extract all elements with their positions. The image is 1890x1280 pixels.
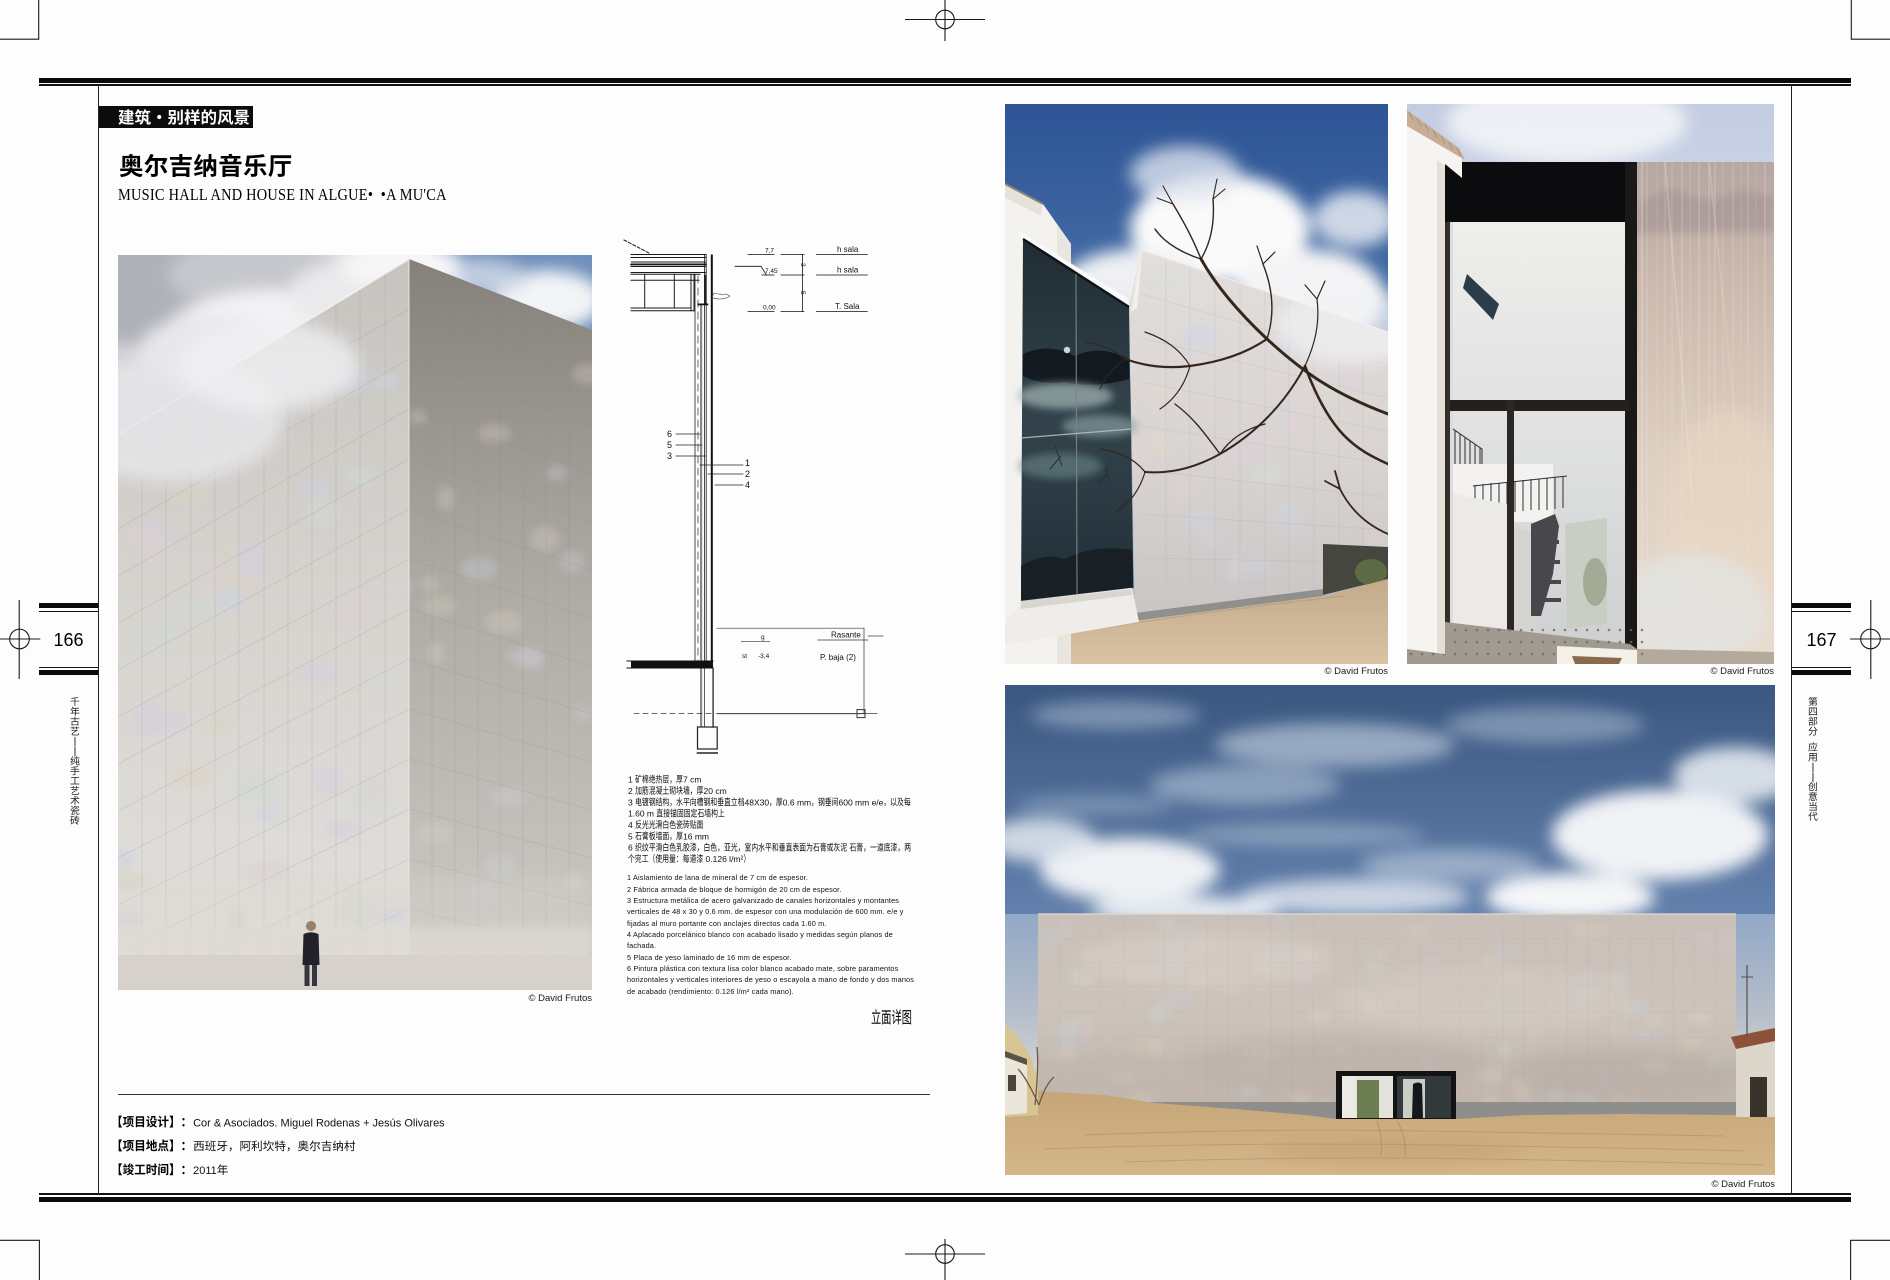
- svg-text:Cor & Asociados. Miguel Rodena: Cor & Asociados. Miguel Rodenas + Jesús …: [193, 1117, 445, 1129]
- svg-text:-3,4: -3,4: [758, 653, 770, 660]
- svg-text:0.6 mm: 0.6 mm: [783, 797, 811, 807]
- svg-text:h sala: h sala: [837, 266, 859, 275]
- svg-text:st: st: [742, 653, 747, 660]
- svg-text:1: 1: [745, 458, 750, 468]
- svg-text:P. baja (2): P. baja (2): [820, 653, 856, 662]
- svg-text:6: 6: [667, 429, 672, 439]
- svg-text:0,00: 0,00: [763, 305, 776, 312]
- svg-text:g: g: [761, 634, 765, 641]
- svg-text:3: 3: [799, 263, 806, 267]
- svg-text:T. Sala: T. Sala: [835, 302, 860, 311]
- svg-text:4: 4: [745, 480, 750, 490]
- svg-text:7,45: 7,45: [765, 268, 778, 275]
- svg-text:4: 4: [628, 820, 635, 830]
- svg-text:2: 2: [745, 469, 750, 479]
- svg-text:1.60 m: 1.60 m: [628, 808, 656, 818]
- svg-text:Rasante: Rasante: [831, 631, 861, 640]
- svg-text:48X30: 48X30: [745, 797, 770, 807]
- svg-text:20 cm: 20 cm: [704, 786, 727, 796]
- svg-text:7,7: 7,7: [765, 248, 774, 255]
- svg-text:6: 6: [628, 842, 635, 852]
- svg-text:5: 5: [628, 831, 635, 841]
- svg-text:h sala: h sala: [837, 245, 859, 254]
- svg-text:5: 5: [667, 440, 672, 450]
- svg-text:3: 3: [667, 451, 672, 461]
- svg-text:3: 3: [628, 797, 635, 807]
- svg-text:2011: 2011: [193, 1165, 217, 1177]
- svg-text:16 mm: 16 mm: [683, 831, 709, 841]
- svg-text:0.126 l/m²: 0.126 l/m²: [703, 854, 743, 864]
- svg-text:5: 5: [799, 291, 806, 295]
- svg-text:600 mm e/e: 600 mm e/e: [839, 797, 884, 807]
- svg-text:2: 2: [628, 786, 635, 796]
- svg-text:7 cm: 7 cm: [683, 774, 701, 784]
- svg-text:1: 1: [628, 774, 635, 784]
